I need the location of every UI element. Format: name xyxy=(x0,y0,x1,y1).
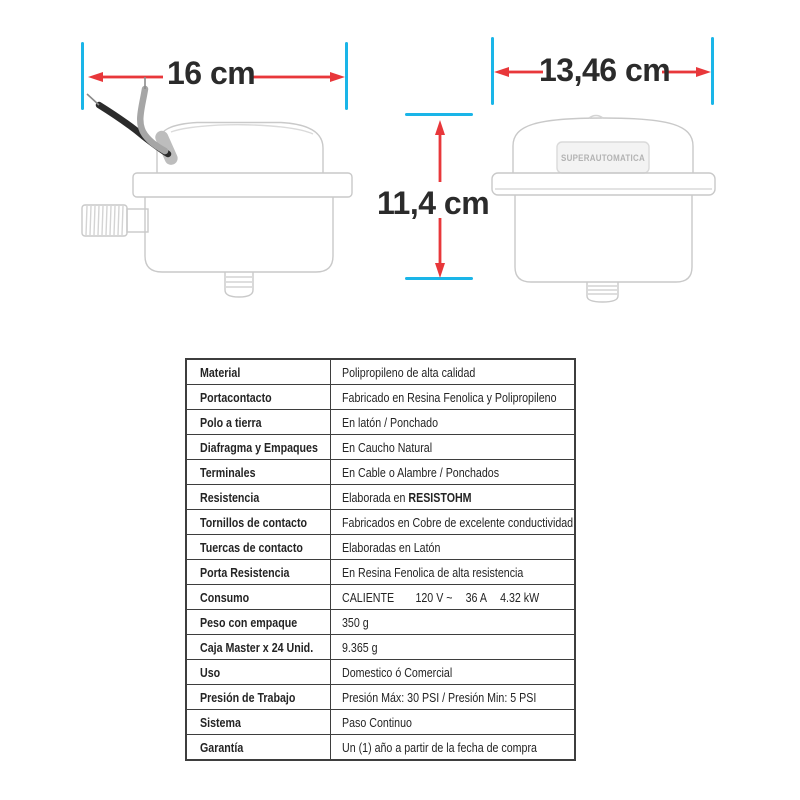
spec-value: 9.365 g xyxy=(331,635,574,659)
spec-label: Consumo xyxy=(187,585,331,609)
device-plate-label: SUPERAUTOMATICA xyxy=(561,153,645,163)
spec-label: Diafragma y Empaques xyxy=(187,435,331,459)
spec-label: Portacontacto xyxy=(187,385,331,409)
spec-label: Resistencia xyxy=(187,485,331,509)
spec-value: En Caucho Natural xyxy=(331,435,574,459)
spec-value: En latón / Ponchado xyxy=(331,410,574,434)
spec-label: Peso con empaque xyxy=(187,610,331,634)
wire-black-tip xyxy=(87,94,99,105)
spec-value: 350 g xyxy=(331,610,574,634)
outlet-thread-hatching xyxy=(226,277,252,287)
spec-label: Tornillos de contacto xyxy=(187,510,331,534)
spec-label: Terminales xyxy=(187,460,331,484)
spec-value: Elaboradas en Latón xyxy=(331,535,574,559)
spec-value: Paso Continuo xyxy=(331,710,574,734)
spec-value: CALIENTE120 V ~36 A4.32 kW xyxy=(331,585,574,609)
heater-side-view-drawing xyxy=(75,75,360,307)
spec-row: UsoDomestico ó Comercial xyxy=(187,660,574,685)
spec-row: Tornillos de contactoFabricados en Cobre… xyxy=(187,510,574,535)
spec-row: Polo a tierraEn latón / Ponchado xyxy=(187,410,574,435)
spec-value: En Resina Fenolica de alta resistencia xyxy=(331,560,574,584)
spec-row: Caja Master x 24 Unid.9.365 g xyxy=(187,635,574,660)
red-arrow-down-icon xyxy=(434,218,446,278)
spec-row: SistemaPaso Continuo xyxy=(187,710,574,735)
spec-row: ConsumoCALIENTE120 V ~36 A4.32 kW xyxy=(187,585,574,610)
spec-row: MaterialPolipropileno de alta calidad xyxy=(187,360,574,385)
spec-row: GarantíaUn (1) año a partir de la fecha … xyxy=(187,735,574,759)
product-spec-sheet: 16 cm 13,46 cm 11,4 cm xyxy=(0,0,800,800)
spec-label: Garantía xyxy=(187,735,331,759)
spec-label: Caja Master x 24 Unid. xyxy=(187,635,331,659)
spec-value: Un (1) año a partir de la fecha de compr… xyxy=(331,735,574,759)
spec-label: Uso xyxy=(187,660,331,684)
spec-label: Tuercas de contacto xyxy=(187,535,331,559)
heater-front-view-drawing: SUPERAUTOMATICA xyxy=(485,108,730,308)
spec-label: Material xyxy=(187,360,331,384)
cyan-tick-right xyxy=(711,37,714,105)
spec-value: Fabricados en Cobre de excelente conduct… xyxy=(331,510,574,534)
spec-label: Sistema xyxy=(187,710,331,734)
spec-value: Domestico ó Comercial xyxy=(331,660,574,684)
spec-row: Diafragma y EmpaquesEn Caucho Natural xyxy=(187,435,574,460)
spec-value: Fabricado en Resina Fenolica y Polipropi… xyxy=(331,385,574,409)
spec-value: En Cable o Alambre / Ponchados xyxy=(331,460,574,484)
cyan-tick-top xyxy=(405,113,473,116)
spec-value: Presión Máx: 30 PSI / Presión Min: 5 PSI xyxy=(331,685,574,709)
spec-row: Porta ResistenciaEn Resina Fenolica de a… xyxy=(187,560,574,585)
width-dimension-label-right: 13,46 cm xyxy=(539,54,670,86)
spec-row: Presión de TrabajoPresión Máx: 30 PSI / … xyxy=(187,685,574,710)
height-dimension-label: 11,4 cm xyxy=(377,187,489,219)
spec-label: Polo a tierra xyxy=(187,410,331,434)
outlet-thread-hatching xyxy=(588,286,617,294)
spec-value: Elaborada en RESISTOHM xyxy=(331,485,574,509)
spec-table: MaterialPolipropileno de alta calidadPor… xyxy=(185,358,576,761)
spec-label: Porta Resistencia xyxy=(187,560,331,584)
spec-label: Presión de Trabajo xyxy=(187,685,331,709)
spec-row: PortacontactoFabricado en Resina Fenolic… xyxy=(187,385,574,410)
spec-row: Peso con empaque350 g xyxy=(187,610,574,635)
red-arrow-left-icon xyxy=(494,66,543,78)
spec-row: TerminalesEn Cable o Alambre / Ponchados xyxy=(187,460,574,485)
red-arrow-up-icon xyxy=(434,120,446,182)
spec-row: Tuercas de contactoElaboradas en Latón xyxy=(187,535,574,560)
spec-row: ResistenciaElaborada en RESISTOHM xyxy=(187,485,574,510)
inlet-thread-hatching xyxy=(86,206,123,235)
spec-value: Polipropileno de alta calidad xyxy=(331,360,574,384)
